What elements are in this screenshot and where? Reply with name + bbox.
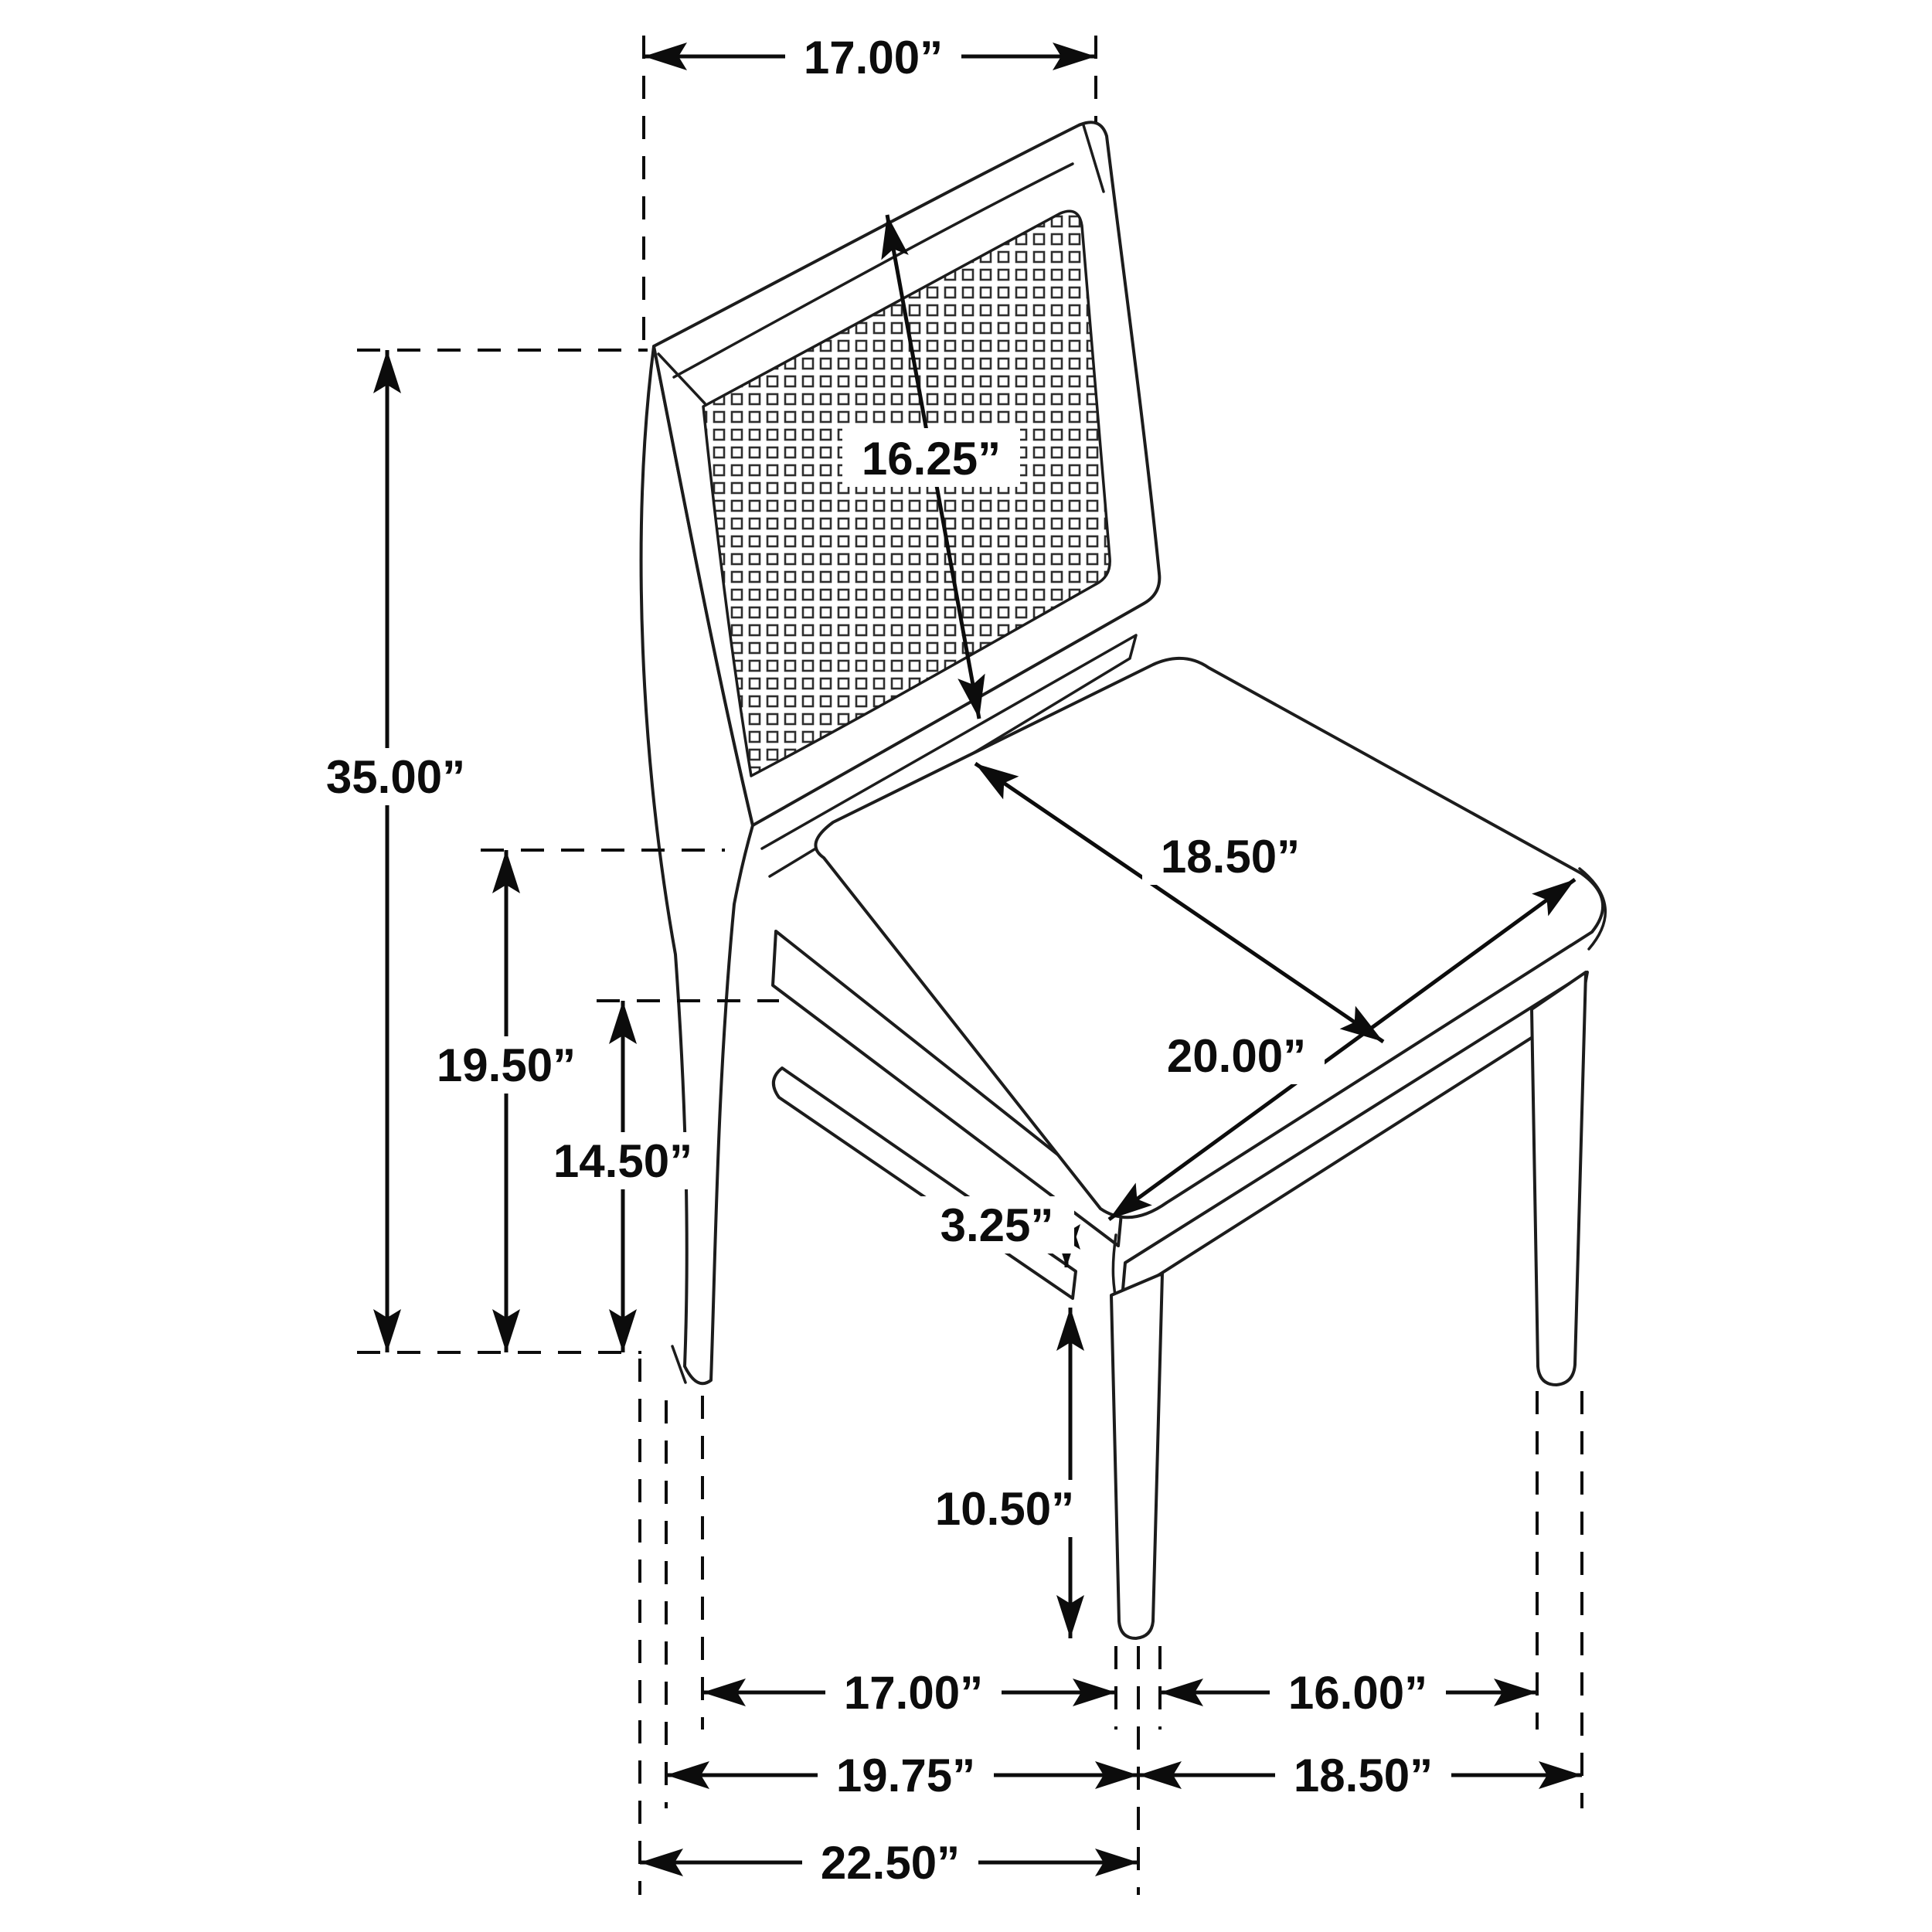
dim-label-base-span-right: 18.50” [1294,1750,1433,1801]
dim-leg-clearance: 10.50” [917,1308,1093,1638]
dim-overall-depth: 22.50” [640,1834,1138,1891]
dim-overall-height: 35.00” [308,350,484,1352]
dim-label-apron-gap: 3.25” [940,1199,1054,1251]
dim-label-back-panel-height: 16.25” [862,433,1001,485]
dim-label-base-span-left: 19.75” [836,1750,975,1801]
dim-base-span-left: 19.75” [666,1747,1138,1804]
dim-label-front-leg-span: 17.00” [844,1667,983,1719]
dim-label-leg-clearance: 10.50” [935,1483,1074,1535]
dim-side-leg-span: 16.00” [1160,1664,1537,1721]
dim-base-span-right: 18.50” [1138,1747,1582,1804]
dim-label-overall-depth: 22.50” [821,1837,960,1889]
front-right-leg [1532,972,1586,1385]
dim-back-top-width: 17.00” [644,29,1096,86]
dim-label-side-leg-span: 16.00” [1288,1667,1427,1719]
dim-label-seat-height: 19.50” [437,1039,576,1091]
dim-label-seat-width: 20.00” [1167,1030,1306,1082]
diagram-canvas: 17.00” 16.25” 35.00” 19.50” 14.50” [0,0,1932,1932]
seat-cushion [815,658,1603,1217]
chair-drawing [641,122,1606,1638]
dim-front-leg-span: 17.00” [702,1664,1116,1721]
dim-label-seat-depth: 18.50” [1161,831,1300,883]
dim-seat-height: 19.50” [418,850,594,1352]
dim-label-overall-height: 35.00” [326,751,465,803]
dim-label-back-top-width: 17.00” [804,32,943,83]
dim-label-apron-height: 14.50” [553,1135,692,1187]
chair-dimension-diagram: 17.00” 16.25” 35.00” 19.50” 14.50” [0,0,1932,1932]
front-left-leg [1111,1274,1162,1638]
